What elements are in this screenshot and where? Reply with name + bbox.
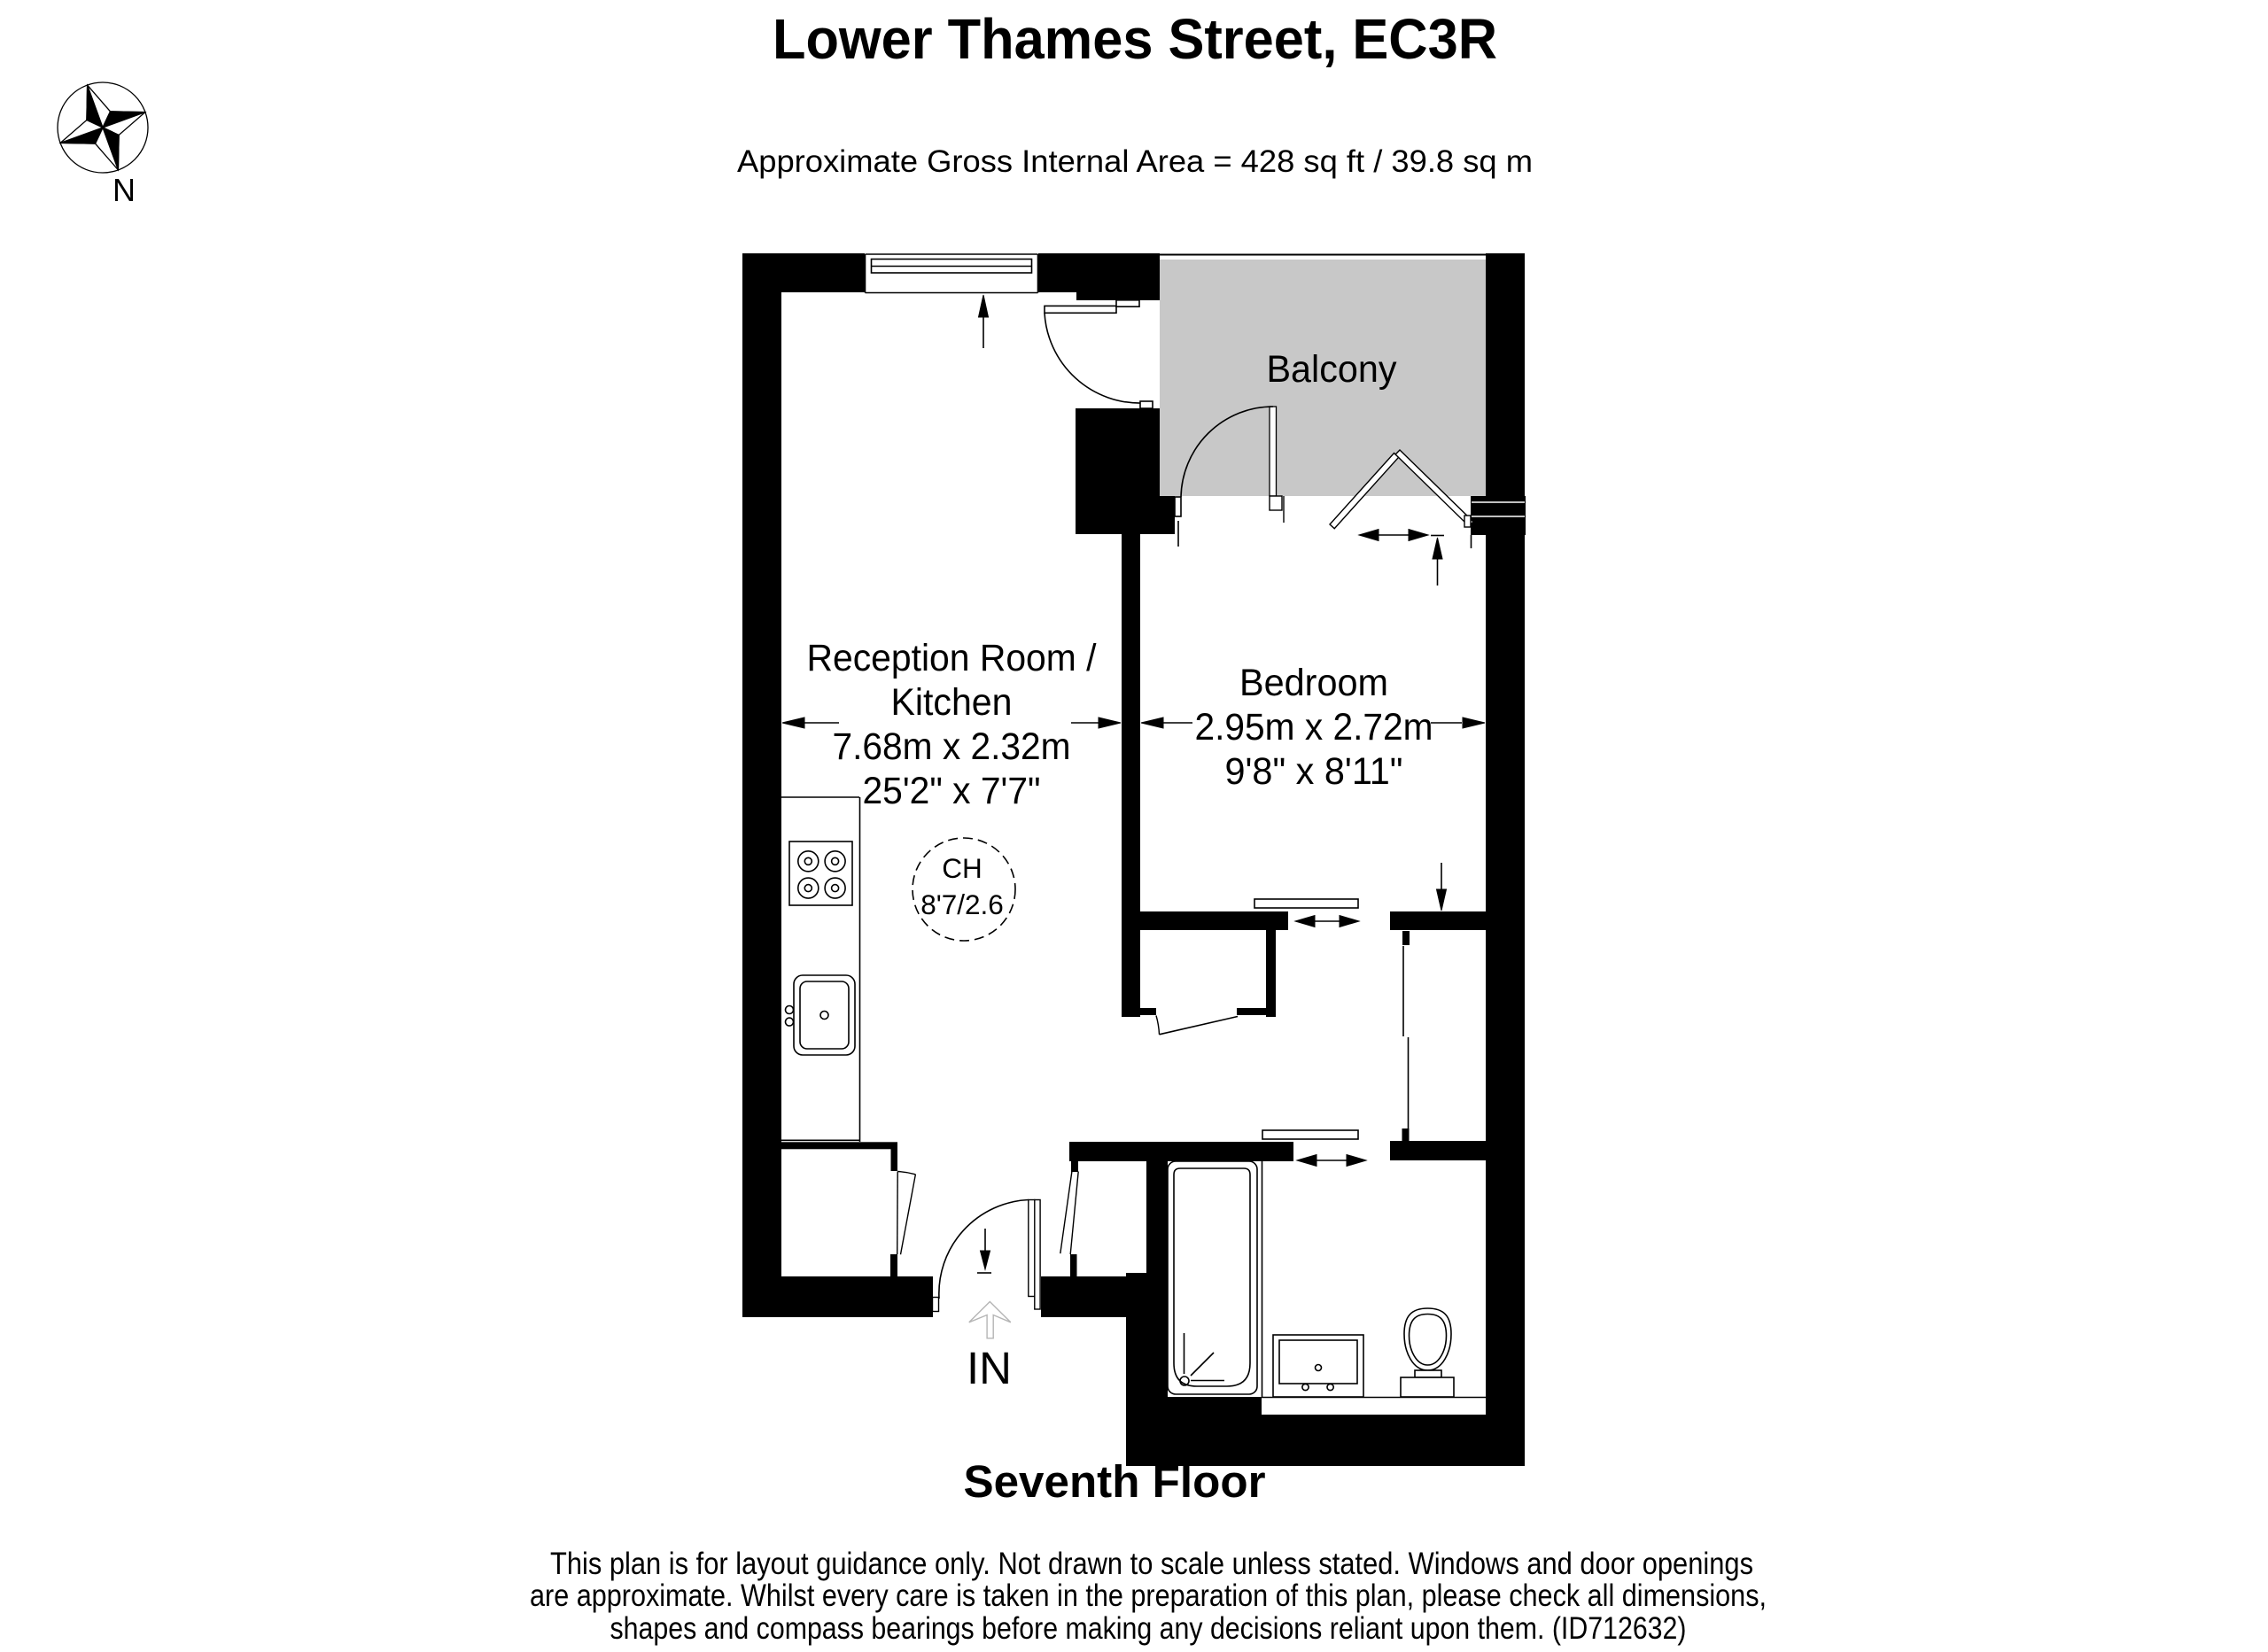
- svg-text:Bedroom: Bedroom: [1239, 663, 1388, 704]
- svg-text:25'2" x 7'7": 25'2" x 7'7": [863, 771, 1041, 812]
- svg-text:N: N: [113, 172, 136, 208]
- svg-text:Approximate Gross Internal Are: Approximate Gross Internal Area = 428 sq…: [737, 143, 1533, 179]
- svg-text:8'7/2.6: 8'7/2.6: [920, 888, 1004, 920]
- svg-text:Seventh Floor: Seventh Floor: [964, 1456, 1266, 1507]
- svg-text:Kitchen: Kitchen: [891, 682, 1013, 724]
- svg-text:Reception Room /: Reception Room /: [807, 638, 1097, 679]
- svg-text:IN: IN: [967, 1343, 1012, 1393]
- svg-text:7.68m x 2.32m: 7.68m x 2.32m: [833, 726, 1071, 768]
- svg-text:9'8" x 8'11": 9'8" x 8'11": [1225, 751, 1403, 793]
- svg-text:shapes and compass bearings be: shapes and compass bearings before makin…: [610, 1610, 1687, 1646]
- svg-text:Balcony: Balcony: [1267, 349, 1398, 391]
- svg-text:2.95m x 2.72m: 2.95m x 2.72m: [1195, 707, 1433, 748]
- svg-text:are approximate. Whilst every: are approximate. Whilst every care is ta…: [530, 1578, 1767, 1613]
- svg-text:CH: CH: [942, 852, 983, 884]
- svg-text:Lower Thames Street, EC3R: Lower Thames Street, EC3R: [773, 7, 1497, 71]
- svg-text:This plan is for layout guidan: This plan is for layout guidance only. N…: [550, 1546, 1753, 1581]
